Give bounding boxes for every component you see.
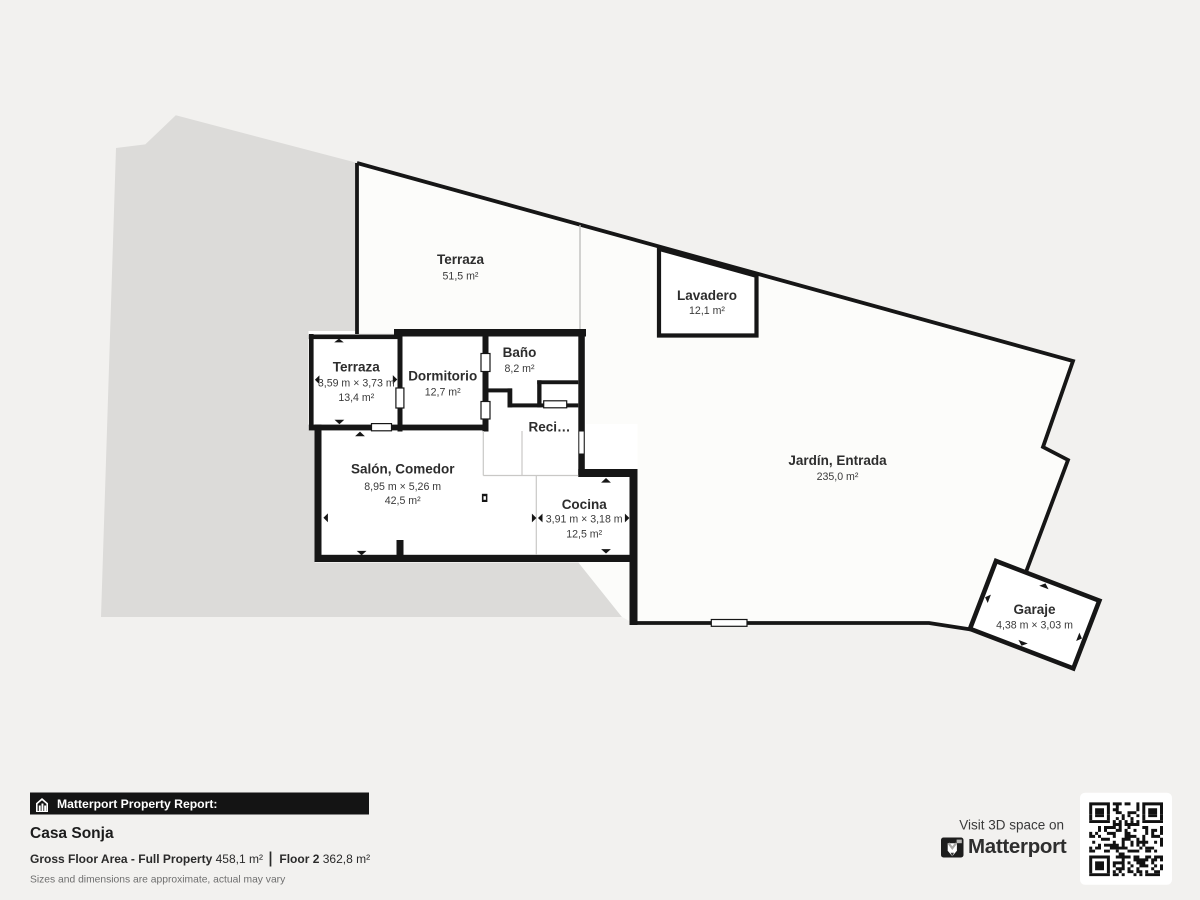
svg-text:4,38 m × 3,03 m: 4,38 m × 3,03 m [996,619,1073,631]
svg-text:Salón, Comedor: Salón, Comedor [351,462,455,477]
svg-text:Casa Sonja: Casa Sonja [30,825,114,842]
svg-text:Visit 3D space on: Visit 3D space on [959,818,1064,833]
svg-text:Cocina: Cocina [562,497,608,512]
svg-text:Dormitorio: Dormitorio [408,368,477,383]
svg-text:12,7 m²: 12,7 m² [425,386,461,398]
svg-text:Reci…: Reci… [528,419,570,434]
svg-text:Baño: Baño [503,345,537,360]
svg-text:3,59 m × 3,73 m: 3,59 m × 3,73 m [318,378,395,390]
svg-text:Terraza: Terraza [333,359,381,374]
svg-text:Garaje: Garaje [1013,602,1056,617]
svg-text:Matterport Property Report:: Matterport Property Report: [57,797,217,811]
svg-text:Jardín, Entrada: Jardín, Entrada [788,453,887,468]
svg-text:Gross Floor Area - Full Proper: Gross Floor Area - Full Property 458,1 m… [30,852,263,866]
svg-text:Terraza: Terraza [437,252,485,267]
svg-text:42,5 m²: 42,5 m² [385,495,421,507]
svg-text:235,0 m²: 235,0 m² [817,471,859,483]
svg-text:3,91 m × 3,18 m: 3,91 m × 3,18 m [546,513,623,525]
svg-text:Sizes and dimensions are appro: Sizes and dimensions are approximate, ac… [30,875,286,886]
svg-text:Floor 2 362,8 m²: Floor 2 362,8 m² [279,852,370,866]
svg-text:51,5 m²: 51,5 m² [443,271,479,283]
svg-text:Matterport: Matterport [968,835,1067,858]
svg-text:8,95 m × 5,26 m: 8,95 m × 5,26 m [364,481,441,493]
svg-text:13,4 m²: 13,4 m² [338,392,374,404]
svg-text:12,5 m²: 12,5 m² [566,529,602,541]
svg-text:8,2 m²: 8,2 m² [504,363,534,375]
svg-text:12,1 m²: 12,1 m² [689,305,725,317]
svg-text:Lavadero: Lavadero [677,288,737,303]
